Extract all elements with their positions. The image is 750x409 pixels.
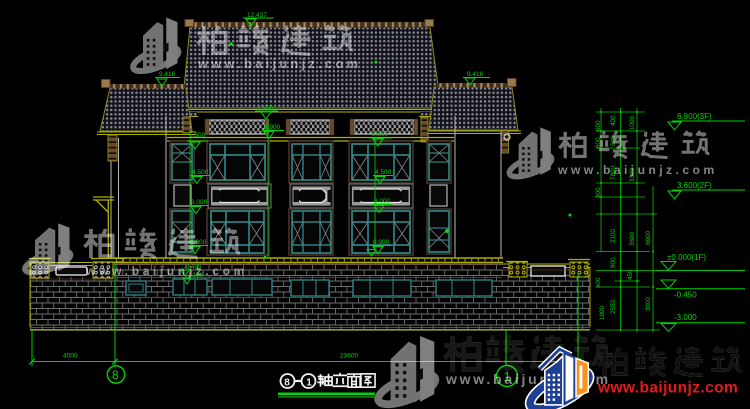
svg-text:1: 1 (306, 378, 312, 389)
svg-text:900: 900 (610, 257, 617, 268)
svg-text:3.600(2F): 3.600(2F) (677, 181, 712, 190)
svg-text:6.900(3F): 6.900(3F) (677, 112, 712, 121)
svg-text:3.000: 3.000 (191, 199, 208, 206)
svg-text:3600: 3600 (629, 231, 636, 246)
svg-text:23600: 23600 (340, 353, 358, 360)
svg-text:3.000: 3.000 (374, 198, 391, 205)
svg-text:4000: 4000 (63, 353, 78, 360)
svg-text:9.416: 9.416 (159, 71, 176, 78)
svg-text:600: 600 (595, 120, 602, 131)
svg-text:6900: 6900 (645, 230, 652, 245)
svg-text:1900: 1900 (599, 305, 606, 320)
svg-text:450: 450 (627, 269, 634, 280)
svg-text:www.baijunjz.com: www.baijunjz.com (85, 264, 248, 278)
svg-text:4.500: 4.500 (192, 169, 209, 176)
svg-text:400: 400 (610, 115, 617, 126)
svg-text:2550: 2550 (610, 299, 617, 314)
svg-text:8: 8 (112, 368, 119, 382)
svg-text:www.baijunjz.com: www.baijunjz.com (557, 163, 718, 177)
svg-text:6.900: 6.900 (264, 124, 281, 131)
svg-text:3000: 3000 (645, 296, 652, 311)
svg-text:4.500: 4.500 (375, 169, 392, 176)
svg-text:600: 600 (595, 277, 602, 288)
svg-text:0.900: 0.900 (373, 239, 390, 246)
svg-text:6.300: 6.300 (189, 132, 206, 139)
svg-text:9.416: 9.416 (467, 71, 484, 78)
svg-text:±0.000(1F): ±0.000(1F) (667, 253, 706, 262)
svg-text:2100: 2100 (610, 228, 617, 243)
svg-text:6.300: 6.300 (372, 131, 389, 138)
svg-text:1000: 1000 (629, 115, 636, 130)
svg-text:www.baijunjz.com: www.baijunjz.com (597, 380, 738, 397)
svg-text:-0.450: -0.450 (674, 291, 697, 300)
svg-text:www.baijunjz.com: www.baijunjz.com (197, 56, 361, 71)
svg-text:-3.000: -3.000 (674, 313, 697, 322)
svg-text:8: 8 (284, 378, 290, 389)
svg-text:900: 900 (595, 187, 602, 198)
